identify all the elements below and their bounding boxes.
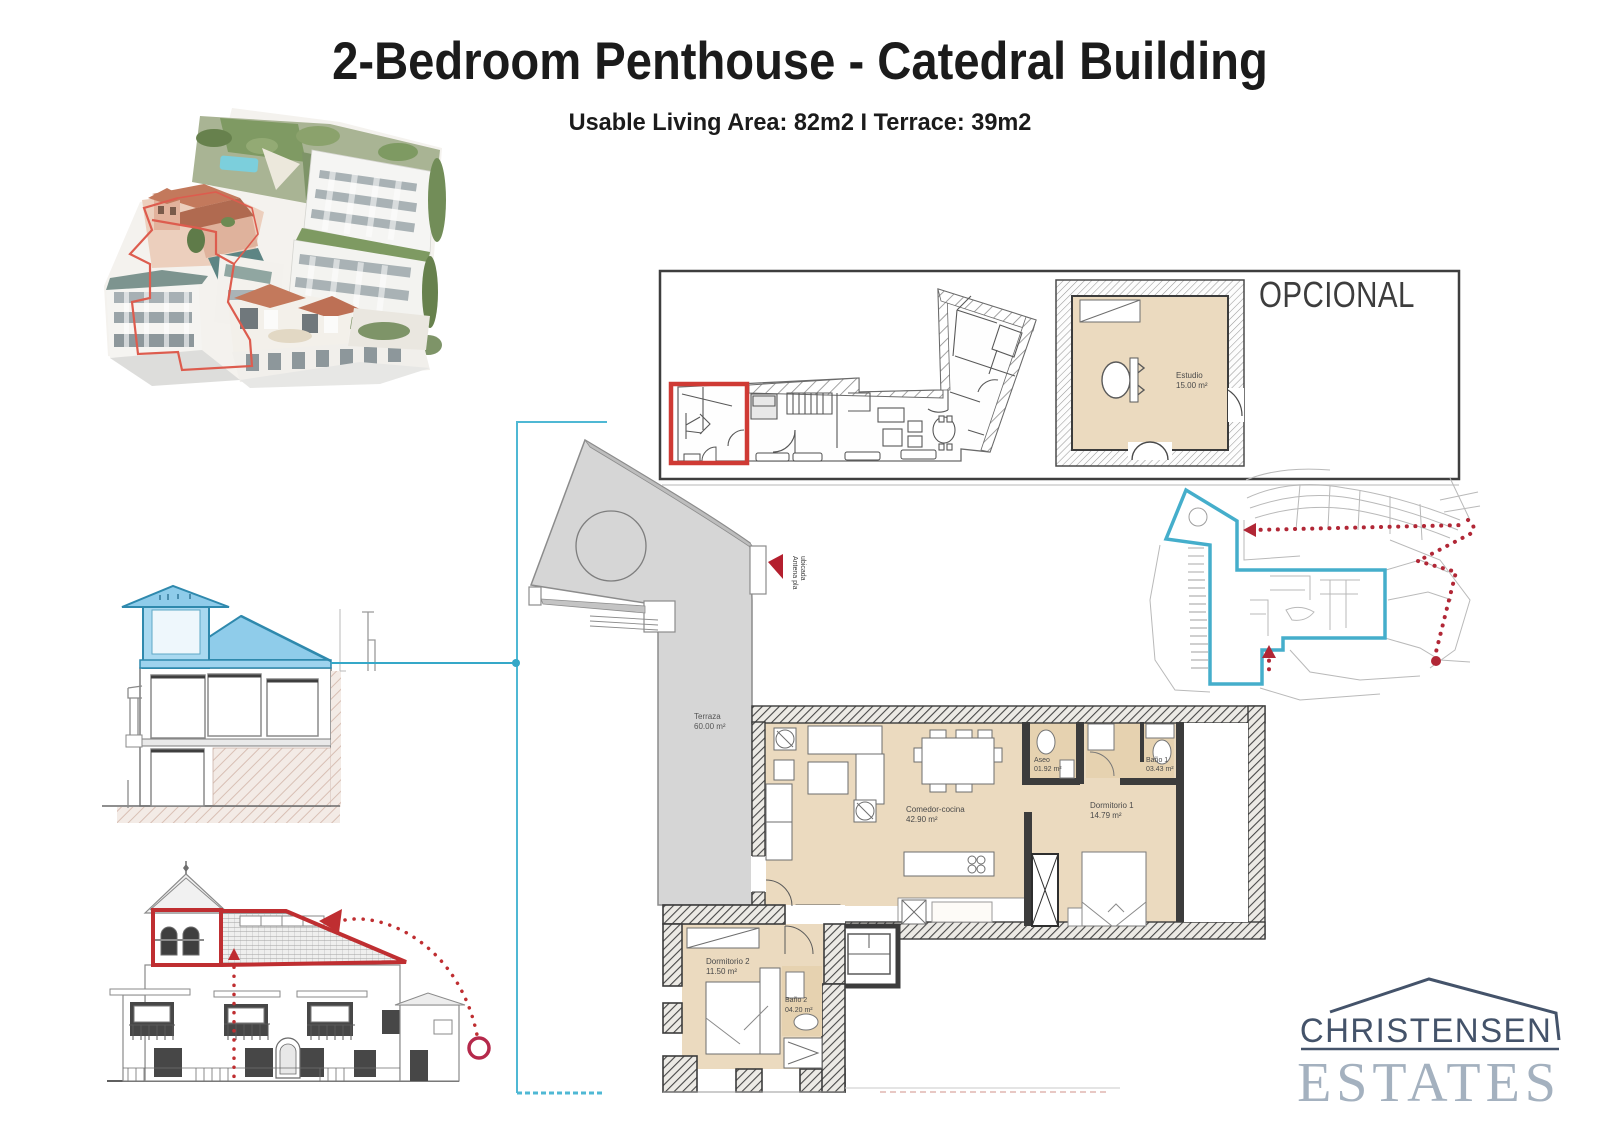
svg-text:01.92 m²: 01.92 m² <box>1034 766 1062 773</box>
svg-text:ubicada: ubicada <box>799 556 806 581</box>
svg-text:Baño 2: Baño 2 <box>785 997 807 1004</box>
svg-text:Terraza: Terraza <box>694 712 721 721</box>
svg-text:14.79 m²: 14.79 m² <box>1090 811 1122 820</box>
svg-text:11.50 m²: 11.50 m² <box>706 967 737 976</box>
svg-text:42.90 m²: 42.90 m² <box>906 815 938 824</box>
svg-text:15.00 m²: 15.00 m² <box>1176 381 1208 390</box>
svg-text:03.43 m²: 03.43 m² <box>1146 766 1174 773</box>
svg-text:Baño 1: Baño 1 <box>1146 757 1168 764</box>
svg-text:60.00 m²: 60.00 m² <box>694 722 726 731</box>
svg-text:Antena pla: Antena pla <box>791 556 798 590</box>
svg-text:Estudio: Estudio <box>1176 371 1203 380</box>
svg-text:Dormitorio 2: Dormitorio 2 <box>706 957 750 966</box>
svg-text:Dormitorio 1: Dormitorio 1 <box>1090 801 1134 810</box>
svg-text:04.20 m²: 04.20 m² <box>785 1007 813 1014</box>
svg-text:Comedor-cocina: Comedor-cocina <box>906 805 965 814</box>
svg-text:Aseo: Aseo <box>1034 757 1050 764</box>
